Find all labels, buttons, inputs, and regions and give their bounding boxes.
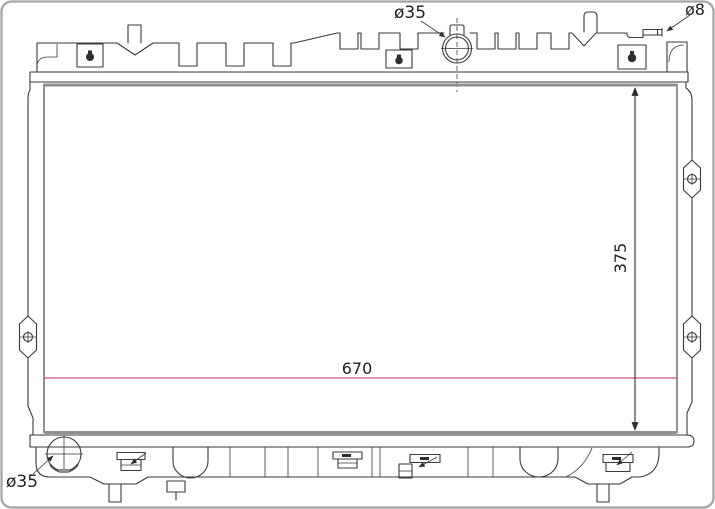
fastener-square-middle xyxy=(386,50,412,68)
top-tank xyxy=(37,12,687,92)
fastener-square-left xyxy=(77,44,103,67)
u-cutout-left xyxy=(173,447,208,478)
bottom-right-chamfer xyxy=(566,448,592,477)
mounting-leg-left xyxy=(109,484,121,502)
clip-1 xyxy=(117,453,146,471)
dim-label-overflow-pipe: ø8 xyxy=(685,0,705,19)
mounting-leg-right xyxy=(597,484,609,502)
clip-2 xyxy=(333,452,362,468)
mounting-lug-left xyxy=(19,316,37,358)
bottom-flange xyxy=(30,435,694,447)
core-side-edges xyxy=(44,84,677,433)
dimension-annotations: 670 375 ø35 ø8 ø35 xyxy=(6,0,705,492)
mounting-lug-right-lower xyxy=(683,316,701,358)
leader-filler-neck xyxy=(421,21,445,37)
outlet-pipe xyxy=(45,435,83,473)
technical-drawing-canvas: 670 375 ø35 ø8 ø35 xyxy=(0,0,715,509)
small-tab-below xyxy=(167,481,185,500)
top-right-end-block xyxy=(667,42,687,72)
left-bracket xyxy=(19,82,37,435)
clip-3 xyxy=(399,455,440,479)
fastener-square-right xyxy=(618,45,646,69)
top-left-post xyxy=(128,25,141,43)
bottom-tank xyxy=(36,435,659,502)
dim-label-core-width: 670 xyxy=(342,359,373,378)
dim-label-core-height: 375 xyxy=(611,243,630,274)
filler-neck xyxy=(441,18,473,92)
radiator-core xyxy=(44,84,677,433)
top-right-post xyxy=(584,12,597,32)
radiator-drawing: 670 375 ø35 ø8 ø35 xyxy=(0,0,715,509)
u-cutout-right xyxy=(520,447,558,477)
right-bracket xyxy=(683,82,701,435)
dim-label-filler-neck: ø35 xyxy=(394,3,426,23)
top-flange xyxy=(30,72,688,82)
clip-4 xyxy=(603,452,633,472)
mounting-lug-right-upper xyxy=(683,160,701,198)
top-tank-inner-fillet xyxy=(37,44,57,67)
overflow-pipe xyxy=(643,29,662,38)
dim-label-outlet: ø35 xyxy=(6,472,38,492)
